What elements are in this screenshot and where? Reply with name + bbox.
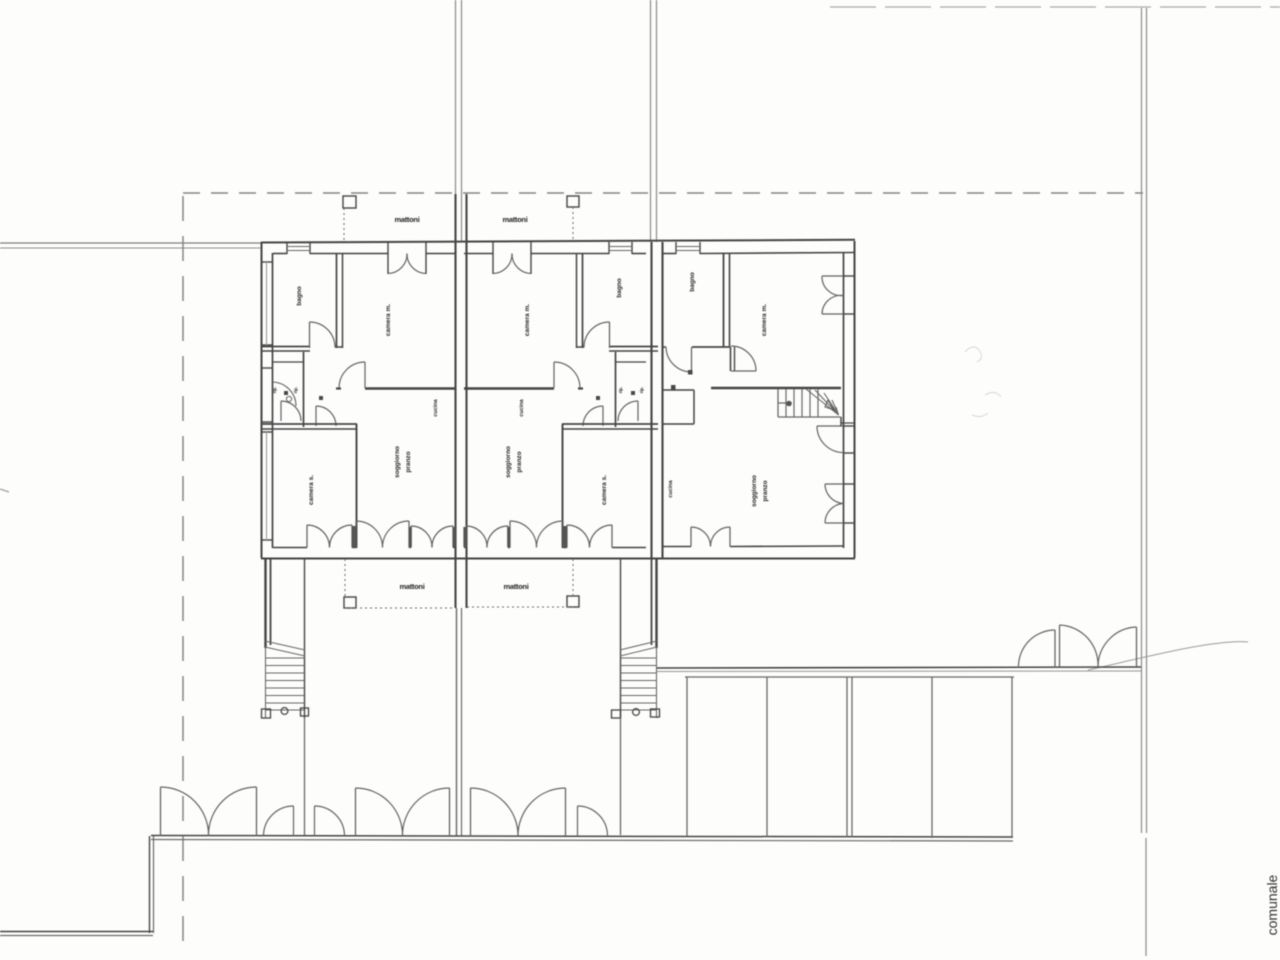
svg-text:mattoni: mattoni	[395, 215, 420, 224]
svg-text:cucina: cucina	[668, 479, 674, 497]
svg-text:camera s.: camera s.	[601, 475, 608, 505]
svg-text:rip.: rip.	[293, 387, 298, 394]
svg-text:mattoni: mattoni	[400, 582, 425, 591]
svg-text:soggiorno: soggiorno	[394, 446, 401, 478]
svg-text:pranzo: pranzo	[516, 451, 523, 472]
svg-text:cucina: cucina	[433, 398, 439, 416]
svg-text:pranzo: pranzo	[405, 451, 412, 472]
svg-text:cucina: cucina	[519, 398, 525, 416]
svg-text:camera m.: camera m.	[761, 304, 768, 336]
svg-text:camera m.: camera m.	[524, 304, 531, 336]
svg-text:rip.: rip.	[618, 387, 623, 394]
svg-text:soggiorno: soggiorno	[751, 475, 758, 507]
svg-text:mattoni: mattoni	[503, 215, 528, 224]
svg-text:soggiorno: soggiorno	[505, 446, 512, 478]
svg-text:bagno: bagno	[296, 286, 303, 306]
svg-text:pranzo: pranzo	[762, 480, 769, 501]
svg-text:bagno: bagno	[616, 278, 623, 298]
svg-text:mattoni: mattoni	[504, 582, 529, 591]
svg-text:bagno: bagno	[689, 272, 696, 292]
svg-text:camera s.: camera s.	[308, 475, 315, 505]
svg-text:rip.: rip.	[639, 387, 644, 394]
svg-text:comunale: comunale	[1264, 874, 1280, 935]
svg-text:camera m.: camera m.	[385, 304, 392, 336]
svg-text:rip.: rip.	[272, 387, 277, 394]
